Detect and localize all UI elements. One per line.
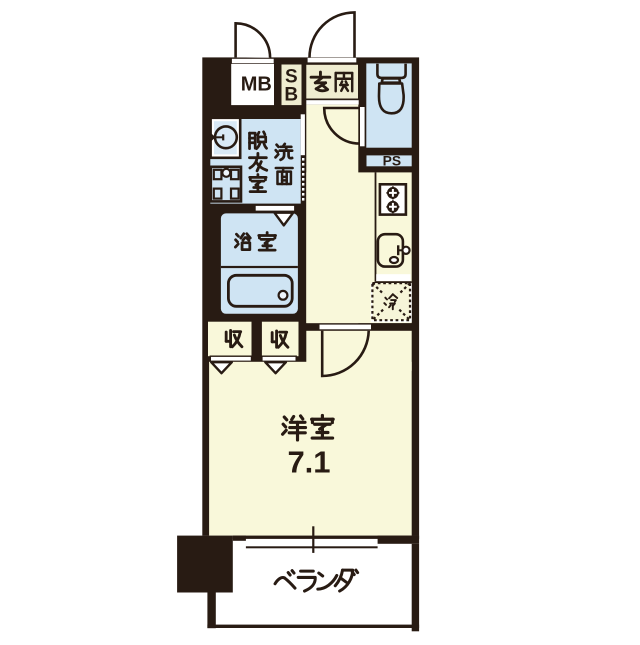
- svg-text:MB: MB: [241, 73, 272, 95]
- svg-text:B: B: [284, 84, 298, 105]
- svg-text:PS: PS: [383, 153, 402, 168]
- svg-text:7.1: 7.1: [287, 444, 330, 479]
